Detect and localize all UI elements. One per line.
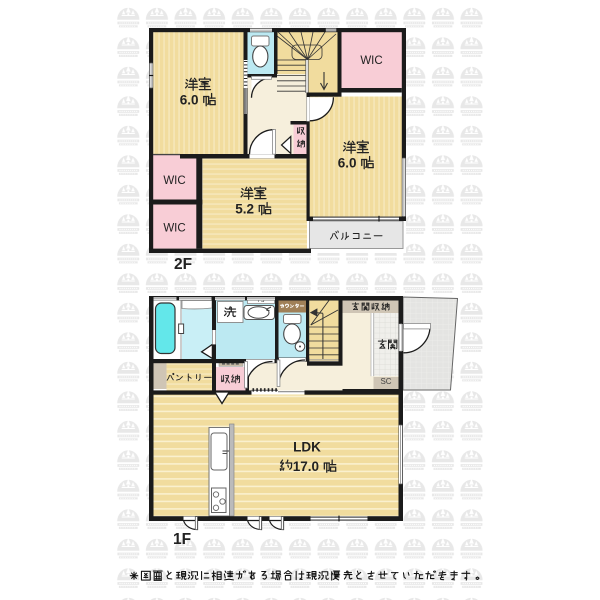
svg-text:6.0: 6.0 (180, 92, 199, 107)
svg-text:6.0: 6.0 (338, 155, 357, 170)
svg-text:SC: SC (380, 377, 391, 386)
svg-text:LDK: LDK (293, 440, 321, 455)
svg-text:WIC: WIC (163, 223, 185, 235)
svg-text:5.2: 5.2 (235, 201, 254, 216)
svg-text:17.0: 17.0 (293, 459, 319, 474)
svg-text:WIC: WIC (360, 55, 382, 67)
svg-text:2F: 2F (174, 256, 192, 273)
svg-text:WIC: WIC (163, 175, 185, 187)
svg-text:1F: 1F (173, 531, 191, 548)
